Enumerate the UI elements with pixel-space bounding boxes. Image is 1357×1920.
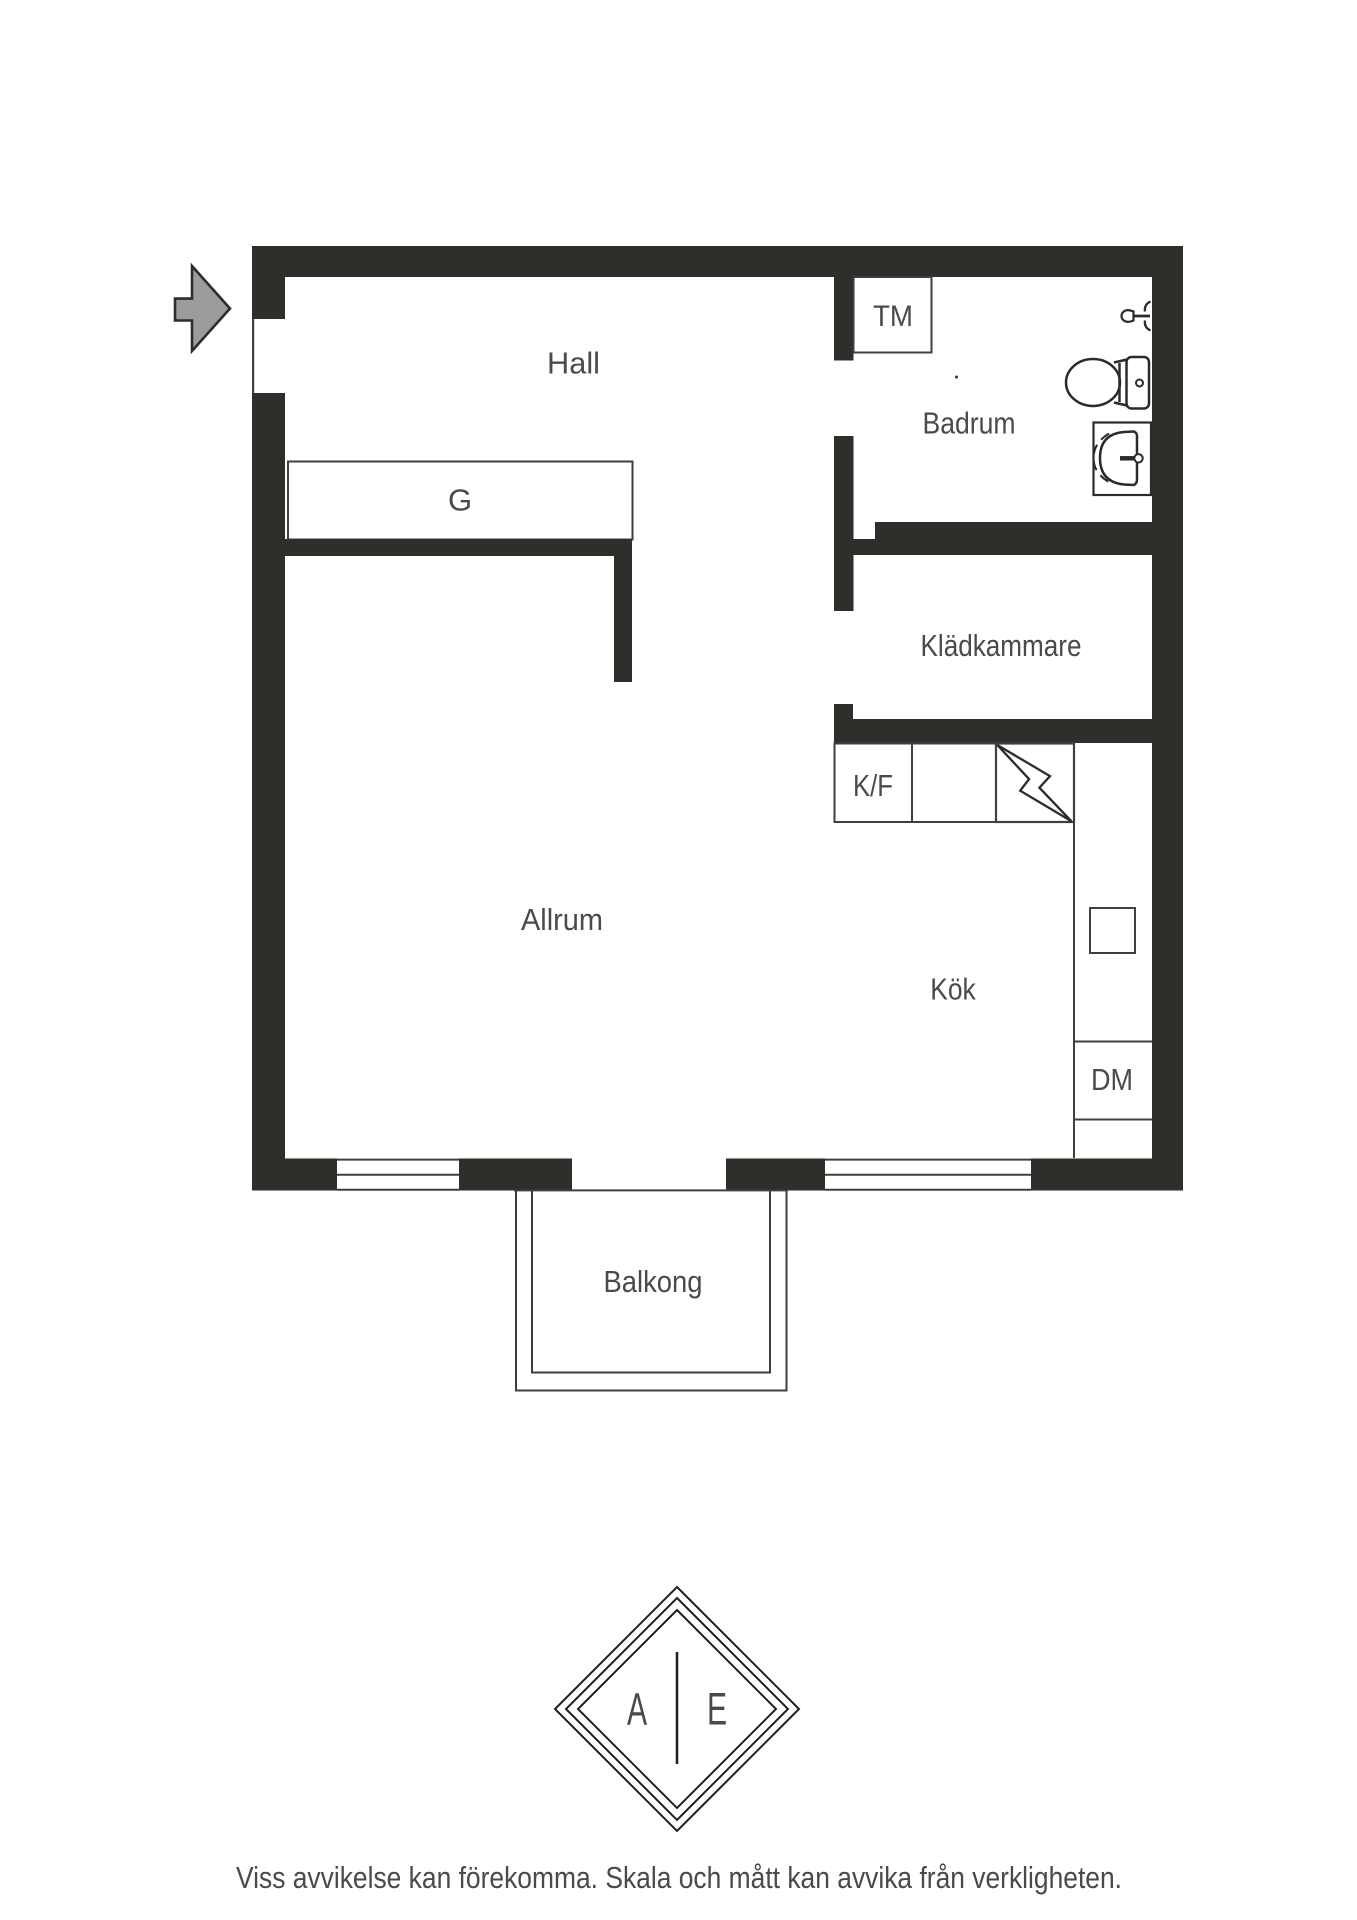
svg-text:Hall: Hall bbox=[547, 346, 600, 381]
svg-text:DM: DM bbox=[1091, 1062, 1133, 1097]
svg-text:Badrum: Badrum bbox=[923, 406, 1016, 441]
svg-text:A: A bbox=[627, 1685, 647, 1736]
svg-text:Balkong: Balkong bbox=[604, 1264, 703, 1299]
svg-text:Viss avvikelse kan förekomma.: Viss avvikelse kan förekomma. Skala och … bbox=[236, 1861, 1122, 1895]
svg-text:G: G bbox=[448, 483, 472, 518]
svg-text:TM: TM bbox=[873, 300, 913, 333]
svg-text:E: E bbox=[707, 1685, 727, 1736]
svg-text:Allrum: Allrum bbox=[521, 902, 603, 937]
svg-text:Kök: Kök bbox=[930, 972, 976, 1007]
svg-text:Klädkammare: Klädkammare bbox=[921, 628, 1082, 663]
svg-text:K/F: K/F bbox=[853, 768, 893, 803]
